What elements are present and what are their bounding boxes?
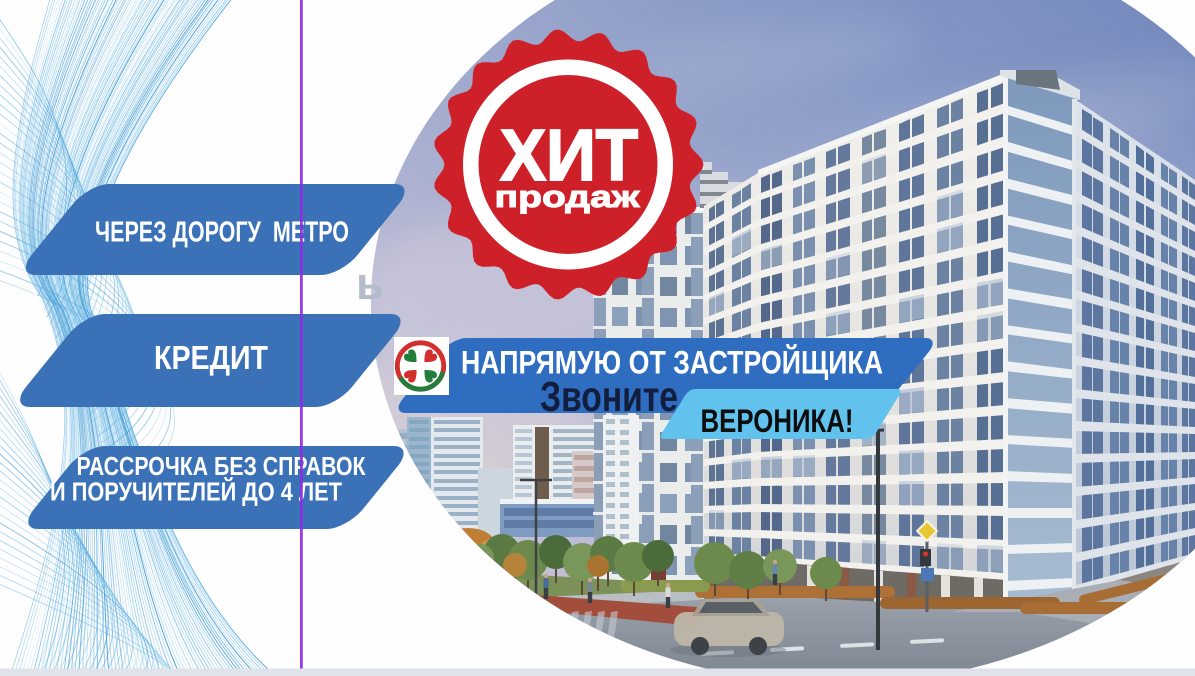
svg-text:Звоните: Звоните bbox=[540, 373, 678, 421]
svg-text:продаж: продаж bbox=[495, 179, 641, 214]
svg-text:ь: ь bbox=[356, 258, 384, 309]
svg-text:КРЕДИТ: КРЕДИТ bbox=[154, 340, 268, 377]
svg-text:ВЕРОНИКА!: ВЕРОНИКА! bbox=[701, 403, 854, 439]
svg-text:И ПОРУЧИТЕЛЕЙ ДО 4 ЛЕТ: И ПОРУЧИТЕЛЕЙ ДО 4 ЛЕТ bbox=[50, 477, 342, 507]
svg-text:ЧЕРЕЗ ДОРОГУ МЕТРО: ЧЕРЕЗ ДОРОГУ МЕТРО bbox=[95, 217, 349, 249]
